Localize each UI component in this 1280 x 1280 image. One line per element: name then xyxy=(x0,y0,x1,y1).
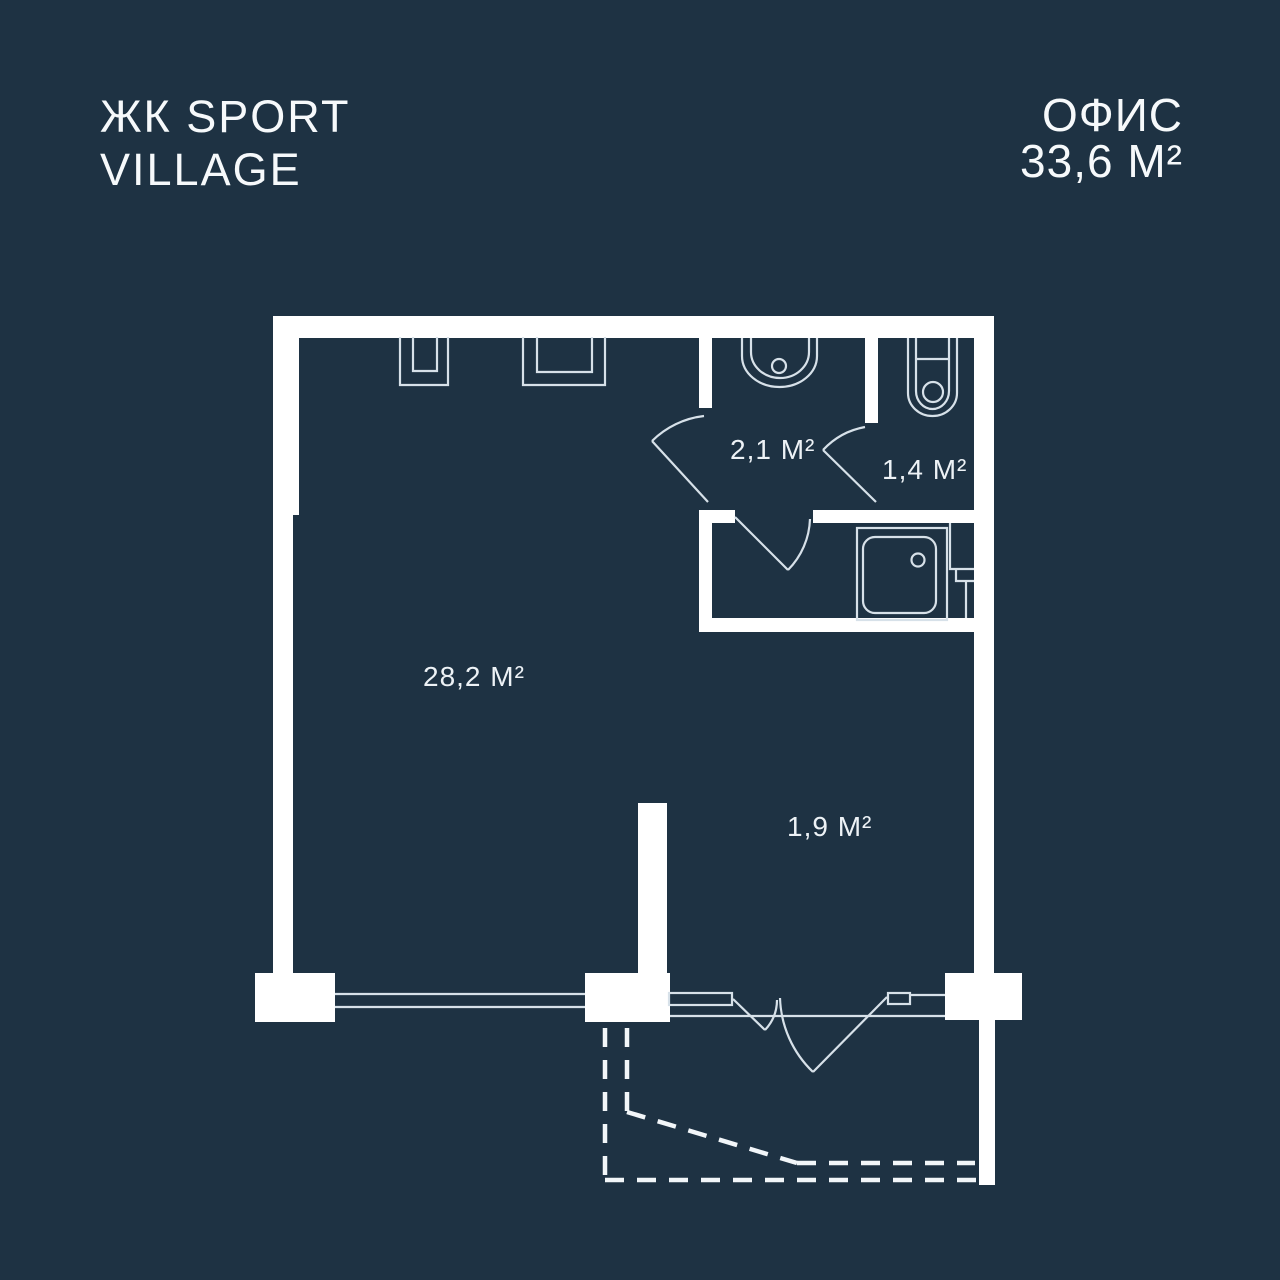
wall-top xyxy=(273,316,994,338)
corner-duct-icon xyxy=(950,523,974,618)
wall-hall-left-lower xyxy=(699,510,712,632)
toilet-icon xyxy=(908,338,957,416)
wall-right xyxy=(974,336,994,973)
pier-bottom-right xyxy=(945,973,1022,1020)
wall-stub-interior xyxy=(638,803,667,975)
room-label-main: 28,2 М² xyxy=(423,661,525,692)
wall-shower-top-stub xyxy=(712,510,735,523)
washbasin-icon xyxy=(742,338,817,387)
shower-tray-icon xyxy=(857,528,947,620)
door-arc-wc xyxy=(823,427,876,502)
wall-left-upper xyxy=(273,336,299,515)
ventilation-niche-small-icon xyxy=(400,337,448,385)
unit-info: ОФИС 33,6 М² xyxy=(1020,92,1183,184)
balcony-door-right-leaf xyxy=(780,997,887,1072)
door-arc-hallway xyxy=(652,416,708,502)
balcony-door-left-leaf xyxy=(733,999,777,1030)
unit-type-title: ОФИС xyxy=(1020,92,1183,138)
structural-walls xyxy=(255,316,1022,1185)
door-arc-shower xyxy=(735,517,810,570)
pier-bottom-left xyxy=(255,973,335,1022)
room-label-niche: 1,9 М² xyxy=(787,811,872,842)
wall-hall-left-upper xyxy=(699,336,712,408)
balcony-dashed-outline xyxy=(605,1028,977,1180)
room-label-hallway: 2,1 М² xyxy=(730,434,815,465)
wall-hall-wc xyxy=(865,336,878,423)
pier-bottom-middle xyxy=(585,973,670,1022)
window-right xyxy=(669,993,945,1016)
room-label-wc: 1,4 М² xyxy=(882,454,967,485)
logo-line2: VILLAGE xyxy=(100,143,350,196)
unit-area-value: 33,6 М² xyxy=(1020,138,1183,184)
window-left xyxy=(335,994,585,1007)
ventilation-niche-large-icon xyxy=(523,337,605,385)
floor-plan-page: 28,2 М² 2,1 М² 1,4 М² 1,9 М² ЖК SPORT VI… xyxy=(0,0,1280,1280)
wall-left-lower xyxy=(273,515,293,973)
wall-balcony-right xyxy=(979,1020,995,1185)
room-labels: 28,2 М² 2,1 М² 1,4 М² 1,9 М² xyxy=(423,434,967,842)
logo-line1: ЖК SPORT xyxy=(100,90,350,143)
logo: ЖК SPORT VILLAGE xyxy=(100,90,350,196)
wall-shower-top xyxy=(813,510,974,523)
